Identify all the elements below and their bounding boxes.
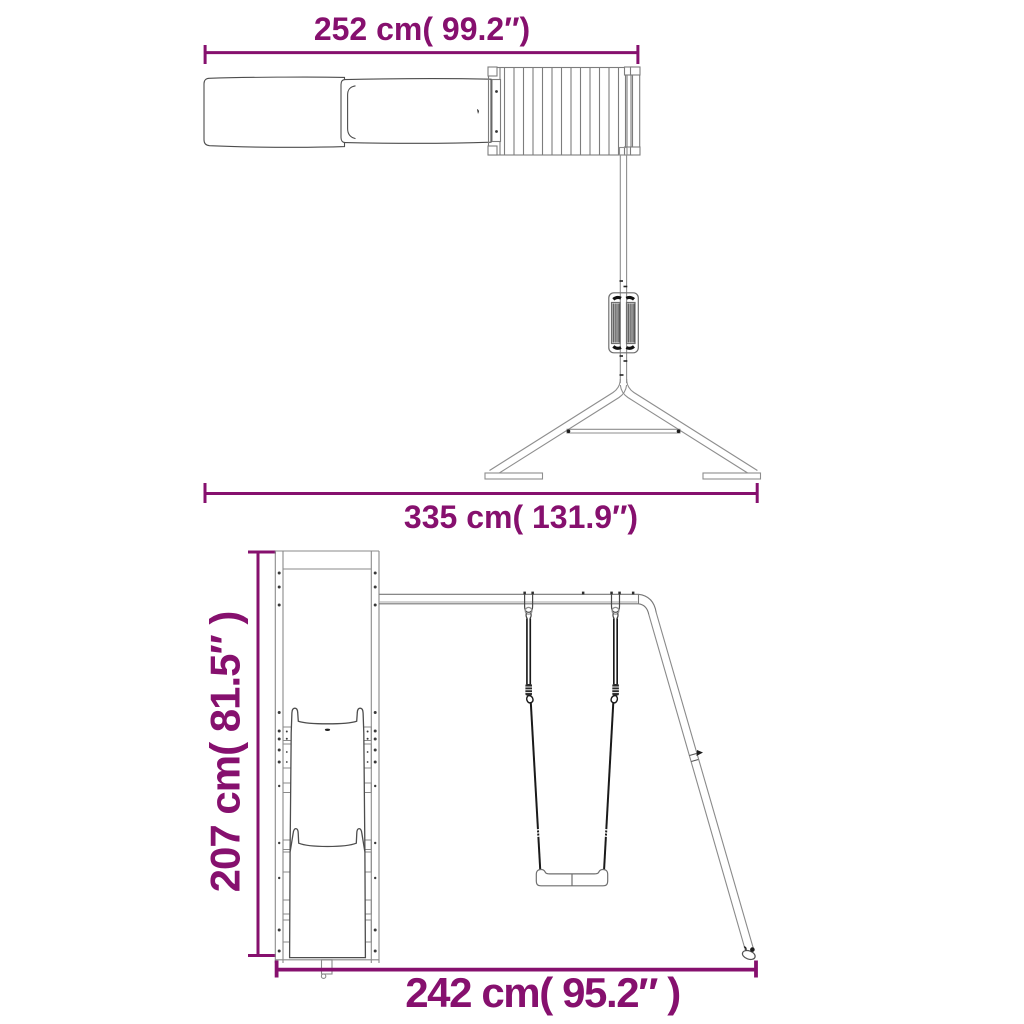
svg-text:242 cm( 95.2″ ): 242 cm( 95.2″ ) bbox=[405, 969, 680, 1016]
svg-text:252 cm( 99.2″): 252 cm( 99.2″) bbox=[314, 11, 530, 47]
svg-text:207 cm( 81.5″ ): 207 cm( 81.5″ ) bbox=[202, 612, 249, 893]
svg-text:335 cm( 131.9″): 335 cm( 131.9″) bbox=[404, 499, 638, 535]
